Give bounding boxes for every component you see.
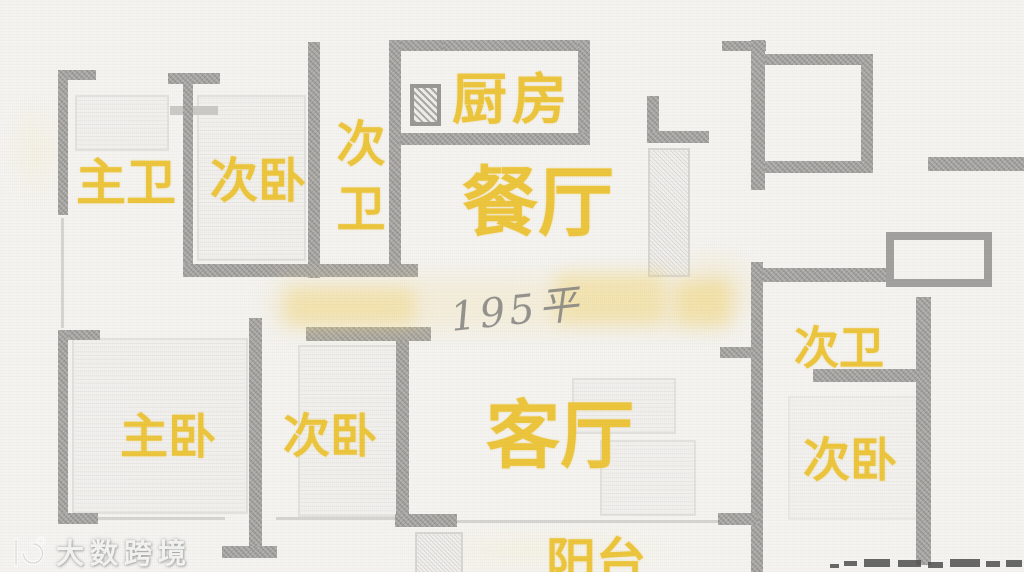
room-label-kitchen: 厨房 [452, 73, 572, 128]
window-line [276, 517, 396, 520]
wall-segment [647, 96, 659, 136]
wall-segment [306, 327, 431, 341]
wall-segment [389, 40, 401, 268]
brand-logo-icon [10, 534, 48, 570]
room-label-master-bath: 主卫 [76, 158, 176, 208]
room-label-bedroom-top: 次卧 [210, 158, 306, 206]
bath-fixture-sketch [75, 95, 169, 151]
wall-segment [395, 514, 457, 527]
wall-segment [58, 330, 68, 523]
room-label-bedroom-left: 次卧 [283, 413, 377, 460]
window-line [61, 218, 64, 328]
brand-watermark: 大数跨境 [10, 532, 192, 572]
room-label-balcony: 阳台 [546, 537, 646, 572]
balcony-sketch [415, 532, 463, 572]
wall-segment [222, 546, 277, 558]
shaft-box [886, 232, 992, 287]
wall-segment [58, 513, 98, 524]
wall-segment [400, 133, 590, 145]
clipped-watermark [828, 555, 1024, 572]
faded-watermark-blob [675, 282, 730, 327]
wall-segment [168, 73, 220, 84]
room-label-bath-top: 次卫 [332, 118, 381, 248]
kitchen-appliance-hatch [410, 84, 441, 126]
wall-segment [578, 40, 590, 144]
area-annotation: 195平 [447, 271, 585, 343]
wall-segment [928, 157, 1024, 171]
faded-watermark-blob [285, 288, 415, 326]
wall-segment [396, 330, 409, 522]
wall-segment [58, 70, 68, 215]
wall-segment [718, 513, 758, 525]
wall-segment [308, 42, 320, 278]
wall-segment [861, 54, 873, 173]
wall-segment [765, 161, 873, 173]
room-label-living: 客厅 [486, 399, 634, 473]
brand-watermark-text: 大数跨境 [56, 532, 192, 572]
floorplan-image: 主卫 次卧 次卫 厨房 餐厅 主卧 次卧 客厅 阳台 次卫 次卧 195平 大数… [0, 0, 1024, 572]
wall-segment [751, 268, 888, 282]
wall-segment [183, 264, 418, 277]
door-header-line [170, 106, 218, 115]
room-label-bath-right: 次卫 [794, 326, 884, 371]
wall-segment [765, 54, 873, 65]
room-label-master-bedroom: 主卧 [120, 414, 216, 462]
dining-table-sketch [648, 148, 690, 277]
wall-segment [443, 40, 590, 51]
wall-segment [751, 40, 765, 190]
room-label-bedroom-right: 次卧 [803, 437, 897, 484]
wall-segment [647, 131, 709, 143]
wall-segment [183, 73, 193, 269]
wall-segment [751, 262, 763, 572]
balcony-door-line [457, 520, 719, 523]
wall-segment [916, 297, 931, 565]
wall-segment [249, 318, 262, 548]
room-label-dining: 餐厅 [462, 166, 614, 242]
window-line [97, 517, 225, 520]
